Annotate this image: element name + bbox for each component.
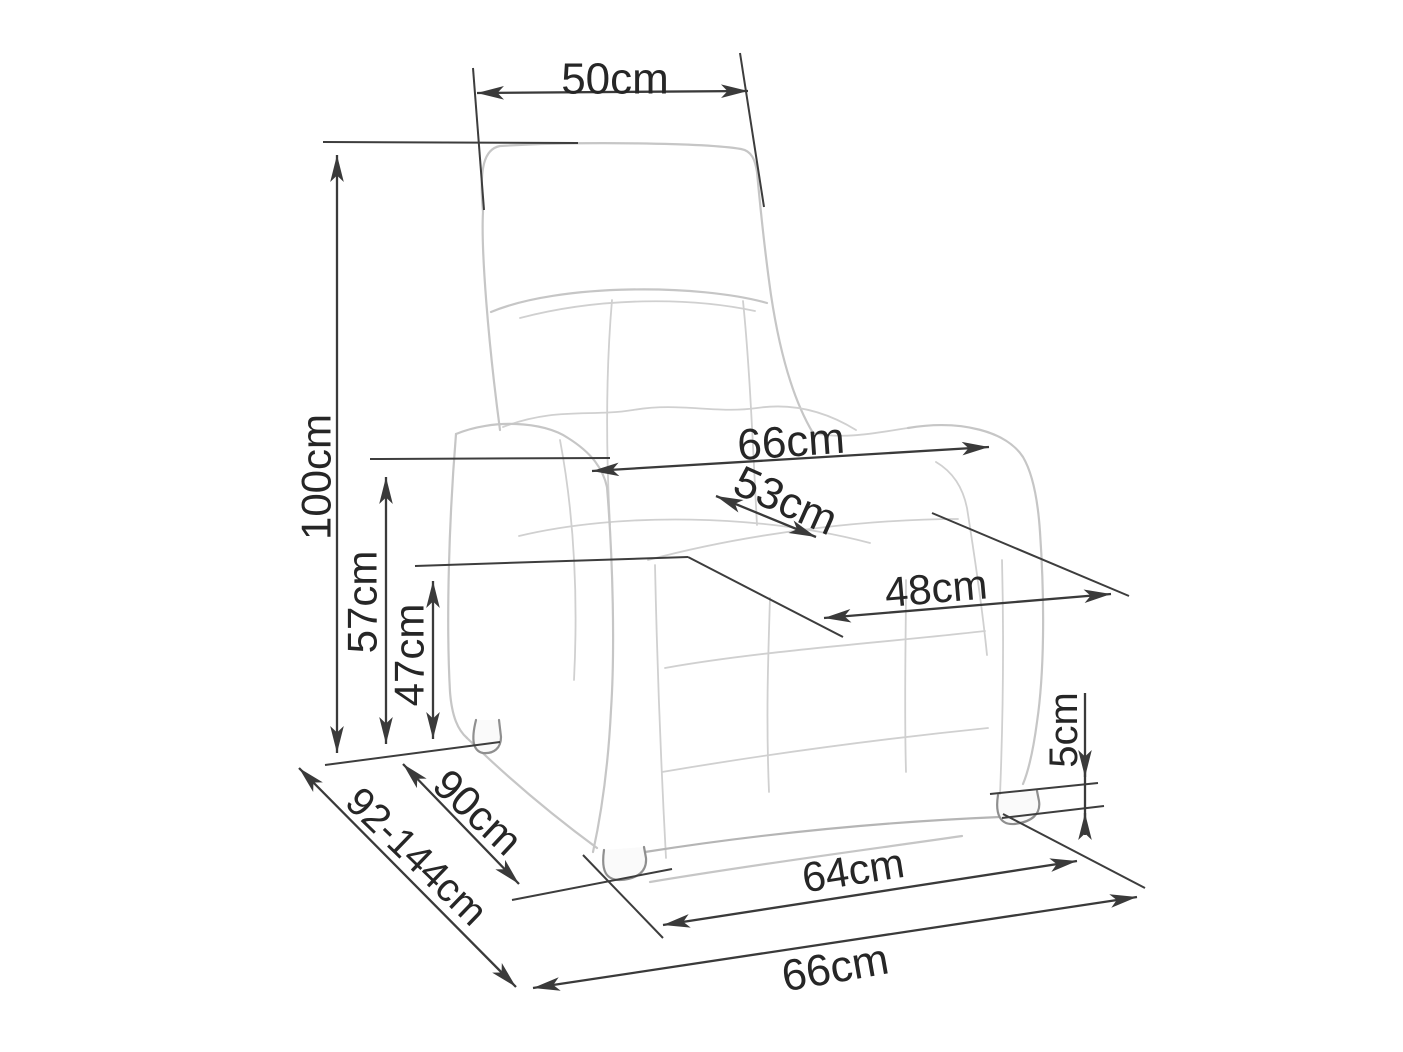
dimension-diagram: 50cm 100cm 57cm 47cm 66cm 53cm 48cm 5cm … [0, 0, 1403, 1052]
chair-left-armrest-top [456, 424, 607, 487]
label-front-base-width: 64cm [799, 839, 908, 901]
chair-right-armrest-front-edge [1000, 560, 1003, 795]
ext-leg-top [990, 783, 1098, 794]
label-armrest-height: 57cm [339, 551, 386, 654]
label-leg-height: 5cm [1042, 692, 1086, 768]
label-seat-depth: 48cm [883, 560, 989, 616]
label-overall-height: 100cm [293, 414, 340, 540]
armchair-sketch [448, 143, 1043, 882]
ext-seat-top [415, 557, 688, 566]
chair-left-armrest-outer-edge [448, 434, 467, 738]
chair-right-armrest-outer-edge [1023, 532, 1043, 784]
chair-seat-front-seam-upper [665, 631, 985, 668]
chair-seat-vertical-seam-left [767, 598, 770, 792]
ext-floor-left [325, 742, 500, 765]
chair-seat-front-seam-lower [662, 728, 988, 772]
label-headrest-width: 50cm [561, 54, 669, 103]
ext-headrest-left [473, 68, 484, 210]
label-overall-front-width: 66cm [778, 934, 892, 1001]
chair-base-bottom-edge [645, 817, 1000, 852]
chair-right-armrest-top [908, 425, 1040, 532]
chair-seat-left-edge [655, 565, 666, 858]
ext-armrest-top [370, 458, 610, 459]
chair-headrest-seam-inner [520, 301, 755, 318]
ext-height-top [323, 142, 578, 143]
label-seat-height: 47cm [386, 604, 433, 707]
chair-left-armrest-front-edge [593, 487, 613, 852]
ext-base-right-diagonal [1003, 814, 1145, 888]
chair-back-left-leg [473, 720, 501, 753]
chair-headrest-seam [491, 289, 767, 312]
armchair-dimension-drawing: 50cm 100cm 57cm 47cm 66cm 53cm 48cm 5cm … [0, 0, 1403, 1052]
ext-seat-top-diagonal [688, 557, 843, 637]
ext-headrest-right [740, 53, 764, 207]
chair-backrest-outline [482, 143, 813, 433]
chair-right-armrest-inner-edge [936, 462, 987, 655]
chair-front-right-leg [997, 791, 1039, 824]
ext-floor-front [512, 869, 672, 900]
